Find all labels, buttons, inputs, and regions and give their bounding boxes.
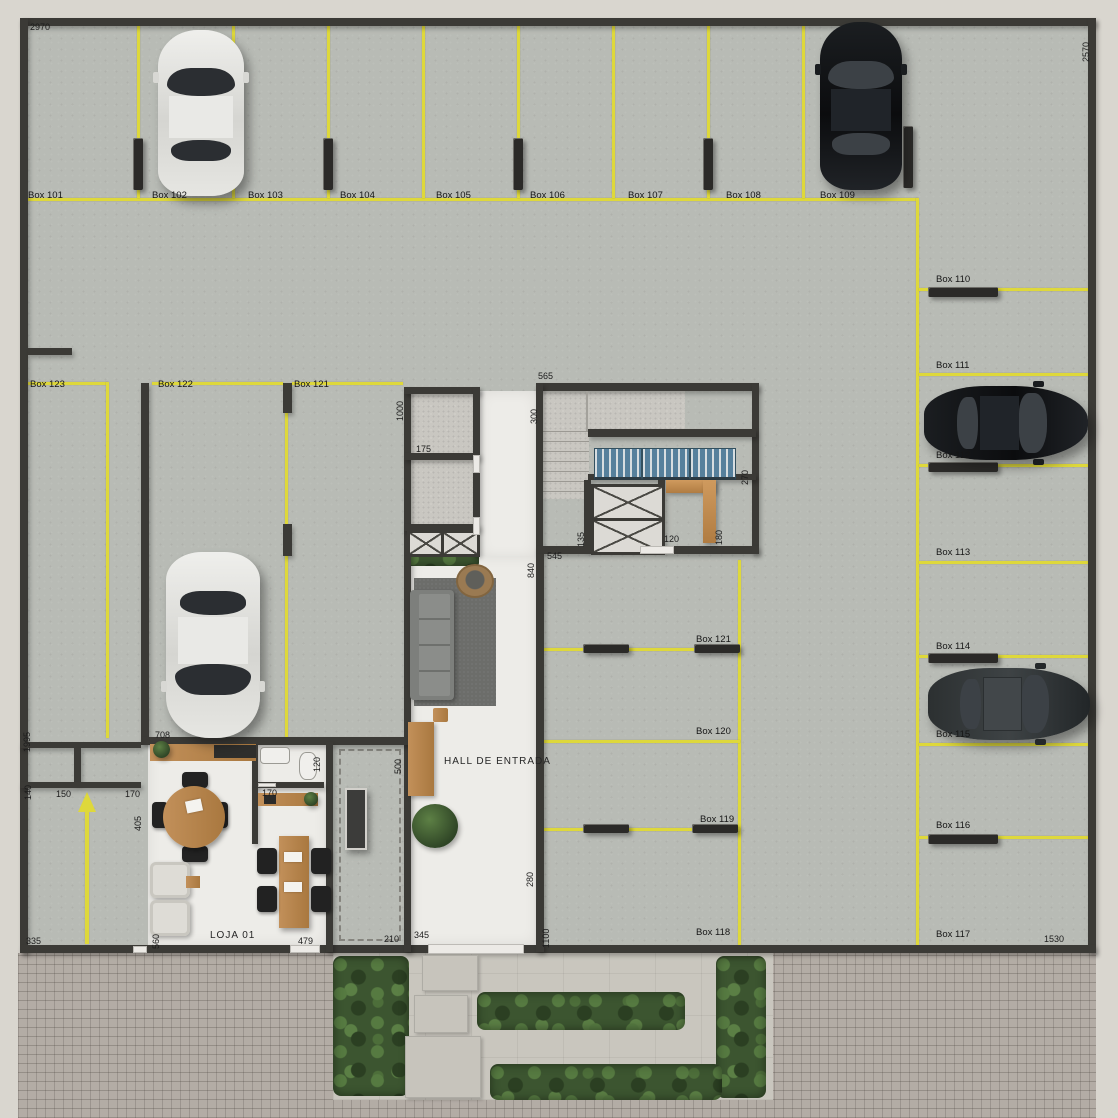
hall-stool: [433, 708, 448, 722]
parking-line: [802, 26, 805, 198]
car-mirror: [161, 681, 167, 692]
car-rear-window: [180, 591, 246, 615]
store-plant-1: [153, 741, 170, 758]
wall: [404, 387, 480, 394]
floor-plan: Box 101Box 102Box 103Box 104Box 105Box 1…: [0, 0, 1118, 1118]
wheel-stop: [928, 834, 998, 844]
desk-chair-1: [257, 848, 277, 874]
wheel-stop: [583, 824, 629, 833]
dining-chair-bottom: [182, 846, 208, 862]
stair-landing-edge: [586, 391, 588, 431]
elevator-cab-1: [411, 394, 473, 453]
suv-grey-box114: [928, 668, 1090, 740]
desk-papers-1: [284, 852, 302, 862]
wall: [752, 383, 759, 554]
desk-papers-2: [284, 882, 302, 892]
hedge-left: [333, 956, 409, 1096]
desk-chair-4: [311, 886, 331, 912]
car-roof: [980, 396, 1019, 451]
wheel-stop: [583, 644, 629, 653]
desk-chair-2: [257, 886, 277, 912]
bike-rack-3: [690, 448, 736, 480]
platform-lift: [345, 788, 367, 850]
car-rear-window: [960, 679, 981, 729]
parking-line: [28, 382, 108, 385]
hall-bench: [408, 722, 434, 796]
shaft-box-1: [591, 484, 665, 521]
wall: [584, 480, 591, 550]
car-roof: [178, 617, 248, 664]
round-table: [163, 786, 225, 848]
hall-sofa: [410, 590, 454, 700]
wall: [141, 383, 149, 743]
wall: [1088, 18, 1096, 953]
car-mirror: [153, 72, 159, 83]
hall-plant: [412, 804, 458, 848]
car-roof: [169, 96, 233, 138]
hall-lounge-chair: [456, 564, 494, 598]
wall: [588, 429, 756, 437]
stair-steps: [543, 431, 589, 499]
car-mirror: [243, 72, 249, 83]
car-white-box102: [158, 30, 244, 196]
wall: [404, 453, 480, 460]
reception-counter-side: [703, 480, 716, 543]
desk-chair-3: [311, 848, 331, 874]
door-opening: [258, 783, 276, 787]
bathroom-sink: [260, 747, 290, 764]
driveway-arrow-icon: [78, 792, 96, 812]
bike-rack-1: [594, 448, 642, 480]
wall: [20, 945, 1096, 953]
car-white-box122: [166, 552, 260, 738]
wheel-stop: [703, 138, 713, 190]
car-mirror: [1035, 739, 1046, 745]
car-windshield: [828, 61, 894, 90]
wheel-stop: [133, 138, 143, 190]
wall: [536, 383, 543, 554]
bike-rack-2: [642, 448, 690, 480]
hedge-bottom: [490, 1064, 722, 1100]
wheel-stop: [928, 653, 998, 663]
parking-line: [919, 743, 1088, 746]
door-opening: [473, 455, 480, 473]
parking-line: [612, 26, 615, 198]
car-mirror: [1035, 663, 1046, 669]
desk-plant: [304, 792, 318, 806]
car-rear-window: [832, 133, 889, 155]
bathroom-toilet: [299, 752, 317, 780]
wheel-stop: [692, 824, 738, 833]
car-black-box109: [820, 22, 902, 190]
parking-line: [85, 812, 89, 944]
parking-line: [422, 26, 425, 198]
shaft-box-small-1: [407, 530, 445, 557]
parking-line: [106, 382, 109, 738]
car-mirror: [901, 64, 907, 75]
hedge-center: [477, 992, 685, 1030]
car-windshield: [175, 664, 250, 696]
armchair-2: [150, 900, 190, 936]
wall: [536, 554, 544, 952]
wall: [536, 383, 759, 391]
wall: [283, 383, 292, 413]
car-mirror: [1033, 459, 1044, 465]
side-table: [186, 876, 200, 888]
wheel-stop: [903, 126, 913, 188]
parking-line: [544, 740, 740, 743]
wall: [326, 742, 333, 952]
parking-line: [919, 373, 1088, 376]
parking-line: [919, 561, 1088, 564]
parking-line: [28, 198, 918, 201]
wall: [74, 748, 81, 784]
car-roof: [983, 677, 1022, 730]
car-windshield: [167, 68, 236, 96]
parking-line: [152, 382, 283, 385]
walkway-slab: [405, 1036, 481, 1098]
armchair-1: [150, 862, 190, 898]
car-black-box111: [924, 386, 1088, 460]
door-opening: [640, 546, 674, 554]
car-rear-window: [957, 397, 978, 449]
car-mirror: [259, 681, 265, 692]
elevator-cab-2: [411, 460, 473, 524]
stair-landing: [543, 391, 685, 431]
door-opening: [133, 946, 147, 953]
door-opening: [428, 944, 524, 954]
wheel-stop: [323, 138, 333, 190]
parking-line: [738, 560, 741, 948]
door-opening: [473, 517, 480, 535]
wall: [20, 18, 1096, 26]
wheel-stop: [694, 644, 740, 653]
car-rear-window: [171, 140, 231, 162]
parking-line: [292, 382, 403, 385]
wheel-stop: [928, 462, 998, 472]
wheel-stop: [928, 287, 998, 297]
wall: [20, 18, 28, 953]
car-roof: [831, 89, 892, 131]
wall: [20, 782, 141, 788]
wheel-stop: [513, 138, 523, 190]
hedge-right: [716, 956, 766, 1098]
wall: [28, 348, 72, 355]
car-windshield: [1019, 393, 1047, 452]
car-mirror: [815, 64, 821, 75]
wall: [283, 524, 292, 556]
car-mirror: [1033, 381, 1044, 387]
stepping-stone-1: [422, 955, 478, 991]
door-opening: [290, 945, 320, 953]
stepping-stone-2: [414, 995, 468, 1033]
parking-line: [285, 412, 288, 738]
store-tv: [214, 745, 256, 758]
laptop: [264, 795, 276, 804]
car-windshield: [1022, 675, 1050, 733]
hall-corridor-floor: [480, 391, 536, 558]
